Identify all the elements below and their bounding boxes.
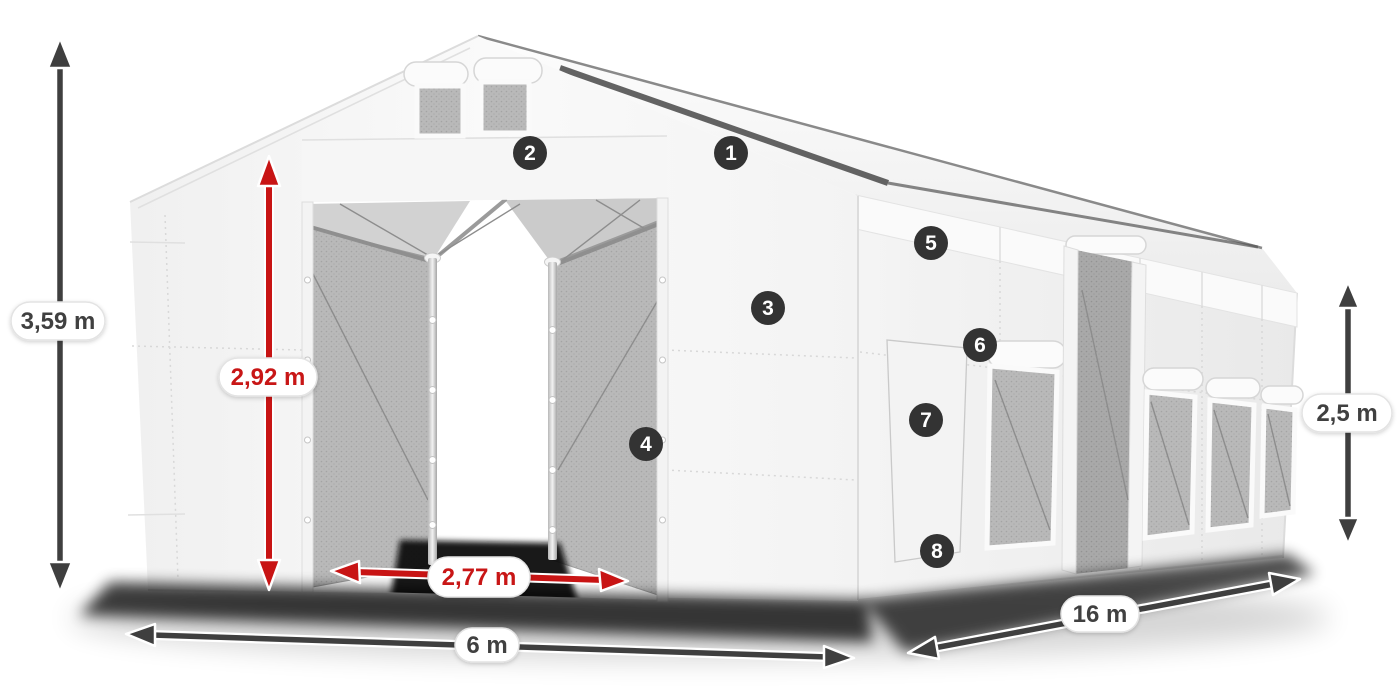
entrance-right-jamb <box>657 198 668 602</box>
marker-2: 2 <box>513 136 547 170</box>
marker-5: 5 <box>914 226 948 260</box>
entrance-left-door-mesh <box>307 226 433 588</box>
marker-2-number: 2 <box>524 142 536 165</box>
length-label: 16 m <box>1061 596 1139 632</box>
marker-7: 7 <box>909 403 943 437</box>
marker-3: 3 <box>751 291 785 325</box>
entrance-opening <box>305 198 664 602</box>
total-height-value: 3,59 m <box>21 308 96 335</box>
entrance-width-value: 2,77 m <box>442 564 517 591</box>
width-value: 6 m <box>466 632 507 659</box>
marker-8: 8 <box>920 534 954 568</box>
marker-4-number: 4 <box>640 433 652 456</box>
entrance-height-label: 2,92 m <box>219 358 317 396</box>
marker-3-number: 3 <box>762 297 774 320</box>
side-window-4-mesh <box>1262 406 1295 516</box>
side-height-label: 2,5 m <box>1302 394 1392 432</box>
side-door-panel <box>887 340 967 562</box>
entrance-right-door-mesh <box>552 222 664 597</box>
entrance-left-jamb <box>302 202 313 592</box>
entrance-height-value: 2,92 m <box>231 364 306 391</box>
marker-4: 4 <box>629 427 663 461</box>
gable-vent-right-rolled-cover <box>474 58 542 83</box>
side-window-1-rolled-cover <box>988 341 1066 368</box>
marker-8-number: 8 <box>931 540 943 563</box>
entrance-mid-pole-left <box>428 258 437 565</box>
marker-6: 6 <box>963 328 997 362</box>
marker-5-number: 5 <box>925 232 937 255</box>
entrance-width-label: 2,77 m <box>428 557 530 597</box>
side-window-2-rolled-cover <box>1143 368 1203 390</box>
side-doorway-interior <box>1074 250 1134 574</box>
entrance-header <box>302 136 667 206</box>
total-height-label: 3,59 m <box>11 302 105 340</box>
width-label: 6 m <box>455 628 519 662</box>
marker-1: 1 <box>714 136 748 170</box>
gable-vent-left-rolled-cover <box>404 62 468 86</box>
entrance-mid-pole-right <box>548 262 557 560</box>
side-height-value: 2,5 m <box>1316 400 1377 427</box>
tent <box>128 36 1303 602</box>
tent-product-image: 3,59 m 2,92 m 2,77 m 6 m 16 m 2,5 m 1 2 … <box>0 0 1400 700</box>
side-doorway-left-jamb <box>1062 246 1078 574</box>
gable-vent-left-mesh <box>417 86 463 136</box>
side-window-4-rolled-cover <box>1261 386 1303 404</box>
length-value: 16 m <box>1073 601 1128 628</box>
tent-diagram-canvas: 3,59 m 2,92 m 2,77 m 6 m 16 m 2,5 m 1 2 … <box>0 0 1400 700</box>
side-window-3-rolled-cover <box>1206 378 1260 398</box>
marker-6-number: 6 <box>974 334 986 357</box>
marker-7-number: 7 <box>920 409 932 432</box>
marker-1-number: 1 <box>725 142 737 165</box>
gable-vent-right-mesh <box>481 82 529 133</box>
